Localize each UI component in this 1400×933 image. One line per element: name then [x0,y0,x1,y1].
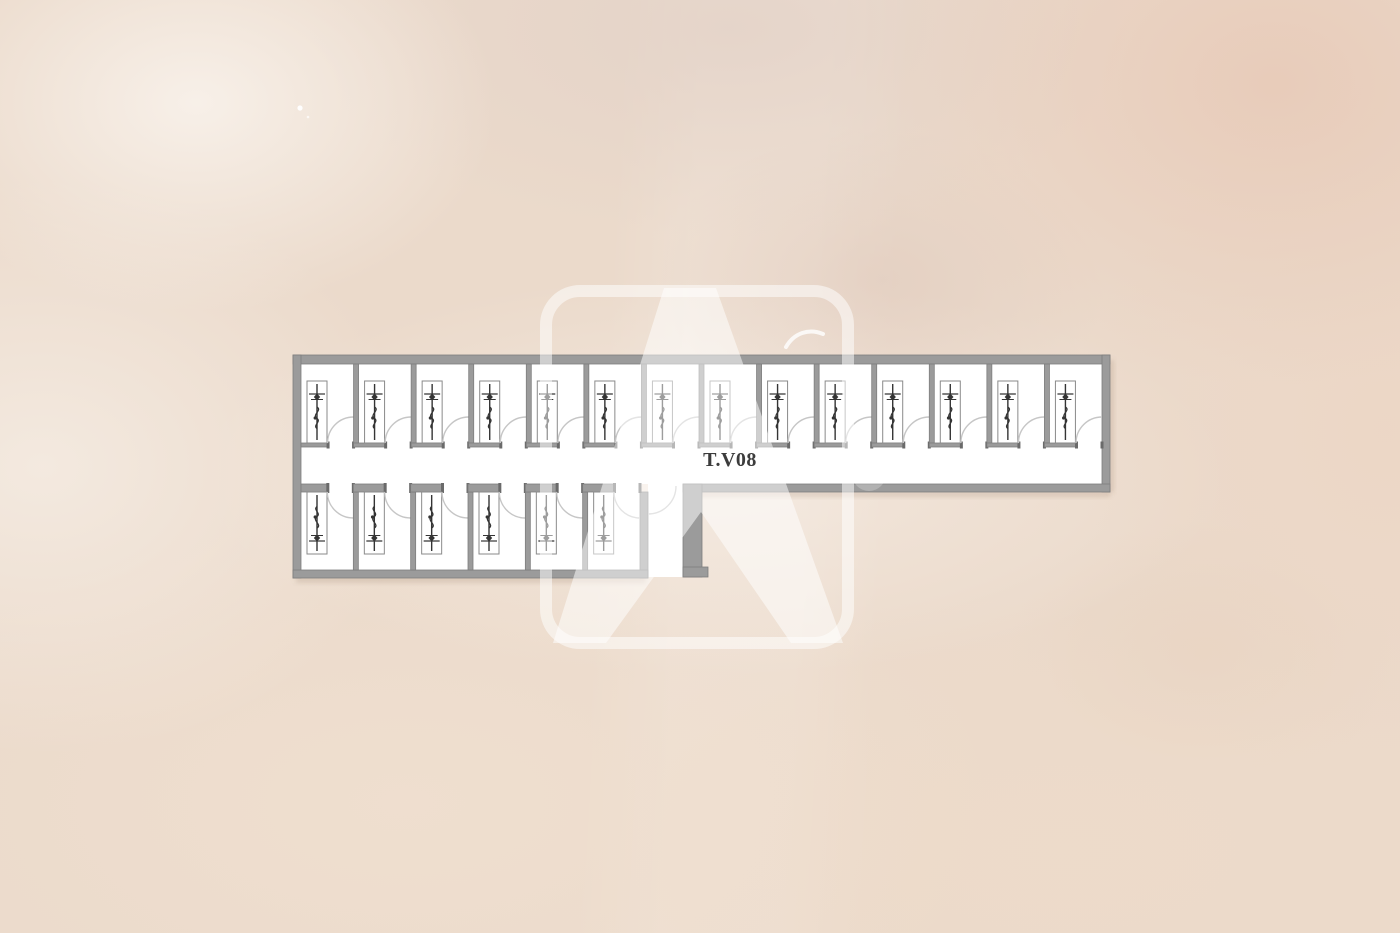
wall [411,492,416,570]
wall [814,443,846,447]
plumbing-stack-icon [307,381,327,443]
wall [929,443,961,447]
wall [353,492,358,570]
wall [411,364,416,443]
wall [411,484,442,492]
wall [987,364,992,443]
plumbing-stack-icon [768,381,788,443]
wall [929,364,934,443]
plumbing-stack-icon [479,492,499,554]
wall [468,492,473,570]
plumbing-stack-icon [480,381,500,443]
wall [293,355,301,578]
wall [469,364,474,443]
unit-room-bottom [301,484,327,492]
plumbing-stack-icon [422,492,442,554]
unit-room-top [301,443,328,447]
wall [354,364,359,443]
wall [411,443,443,447]
wall [354,443,386,447]
plumbing-stack-icon [998,381,1018,443]
wall [468,484,499,492]
wall [1102,355,1110,492]
plumbing-stack-icon [1055,381,1075,443]
wall [301,484,327,492]
scene: T.V08 [0,0,1400,933]
wall [584,443,616,447]
corridor-label: T.V08 [699,449,761,472]
plumbing-stack-icon [365,381,385,443]
plumbing-stack-icon [422,381,442,443]
paper-speck [297,105,302,110]
wall [584,364,589,443]
wall [987,443,1019,447]
plumbing-stack-icon [940,381,960,443]
wall [872,364,877,443]
wall [469,443,501,447]
door-jamb [1101,442,1104,449]
plumbing-stack-icon [364,492,384,554]
plumbing-stack-icon [307,492,327,554]
paper-swoosh-mark [786,332,823,347]
wall [1044,443,1076,447]
plumbing-stack-icon [883,381,903,443]
wall [872,443,904,447]
wall [814,364,819,443]
plumbing-stack-icon [595,381,615,443]
wall [526,364,531,443]
wall [525,492,530,570]
paper-speck [307,116,310,119]
wall [1044,364,1049,443]
wall [301,443,328,447]
wall [353,484,384,492]
wall [683,567,708,577]
